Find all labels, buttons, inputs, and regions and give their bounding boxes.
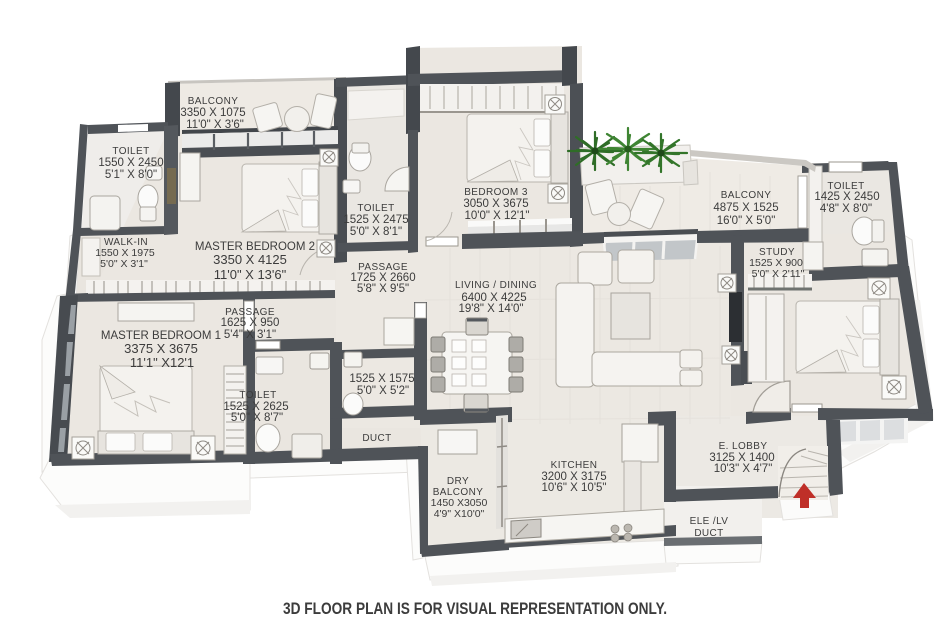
svg-text:5'4" X 3'1": 5'4" X 3'1" <box>224 329 276 341</box>
svg-text:BALCONY: BALCONY <box>188 96 239 107</box>
svg-text:DUCT: DUCT <box>362 433 391 444</box>
svg-text:5'0" X 3'1": 5'0" X 3'1" <box>100 258 148 270</box>
svg-text:ELE /LV: ELE /LV <box>690 516 729 527</box>
svg-text:KITCHEN: KITCHEN <box>551 460 598 471</box>
svg-text:5'0" X 5'2": 5'0" X 5'2" <box>357 385 409 397</box>
svg-text:LIVING / DINING: LIVING / DINING <box>455 280 537 291</box>
svg-text:TOILET: TOILET <box>239 390 276 401</box>
svg-text:5'0" X 8'7": 5'0" X 8'7" <box>231 412 283 424</box>
svg-text:19'8" X 14'0": 19'8" X 14'0" <box>459 303 524 315</box>
svg-text:1425 X 2450: 1425 X 2450 <box>814 191 879 203</box>
svg-text:3350 X 1075: 3350 X 1075 <box>180 107 245 119</box>
svg-text:1625 X 950: 1625 X 950 <box>221 317 280 329</box>
svg-text:10'6" X 10'5": 10'6" X 10'5" <box>542 482 607 494</box>
svg-text:3350 X 4125: 3350 X 4125 <box>213 252 287 267</box>
svg-text:3050 X 3675: 3050 X 3675 <box>463 198 528 210</box>
svg-text:16'0" X 5'0": 16'0" X 5'0" <box>717 215 776 227</box>
svg-text:5'0" X 8'1": 5'0" X 8'1" <box>350 226 402 238</box>
svg-text:3375 X 3675: 3375 X 3675 <box>124 341 198 356</box>
svg-text:5'0" X 2'11": 5'0" X 2'11" <box>752 268 805 280</box>
svg-text:10'3" X 4'7": 10'3" X 4'7" <box>714 463 773 475</box>
svg-text:3D FLOOR PLAN IS FOR VISUAL RE: 3D FLOOR PLAN IS FOR VISUAL REPRESENTATI… <box>283 600 667 618</box>
svg-text:BEDROOM 3: BEDROOM 3 <box>464 187 528 198</box>
svg-text:1525 X 2475: 1525 X 2475 <box>343 214 408 226</box>
svg-text:TOILET: TOILET <box>357 203 394 214</box>
svg-text:5'8" X 9'5": 5'8" X 9'5" <box>357 283 409 295</box>
svg-text:1525 X 1575: 1525 X 1575 <box>349 373 414 385</box>
svg-text:5'1" X 8'0": 5'1" X 8'0" <box>105 169 157 181</box>
svg-text:4'9" X10'0": 4'9" X10'0" <box>434 508 485 520</box>
svg-text:DRY: DRY <box>447 476 469 487</box>
svg-text:4'8" X 8'0": 4'8" X 8'0" <box>820 203 872 215</box>
svg-text:11'1" X12'1: 11'1" X12'1 <box>130 355 194 370</box>
svg-text:E. LOBBY: E. LOBBY <box>719 441 768 452</box>
svg-text:11'0" X 13'6": 11'0" X 13'6" <box>214 267 287 282</box>
svg-text:11'0" X 3'6": 11'0" X 3'6" <box>186 119 244 131</box>
svg-text:4875 X 1525: 4875 X 1525 <box>713 202 778 214</box>
svg-text:TOILET: TOILET <box>112 146 149 157</box>
svg-text:BALCONY: BALCONY <box>721 190 772 201</box>
svg-text:1550 X 2450: 1550 X 2450 <box>98 157 163 169</box>
svg-text:DUCT: DUCT <box>694 528 723 539</box>
svg-text:10'0" X 12'1": 10'0" X 12'1" <box>465 210 530 222</box>
